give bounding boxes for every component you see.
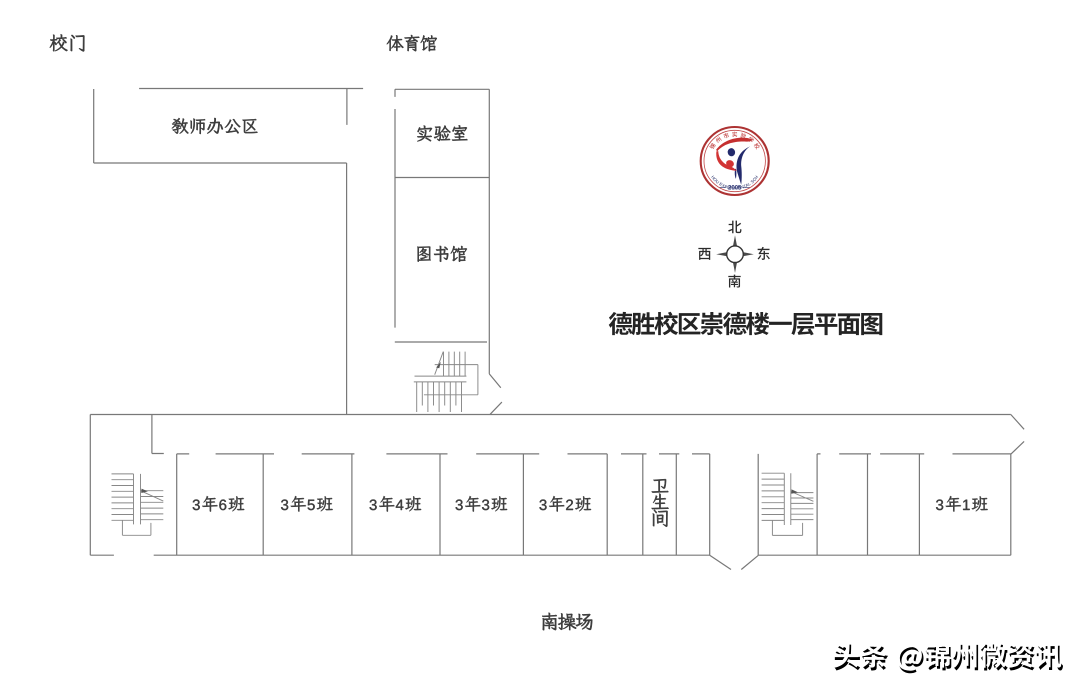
svg-text:2005: 2005 xyxy=(728,185,742,191)
